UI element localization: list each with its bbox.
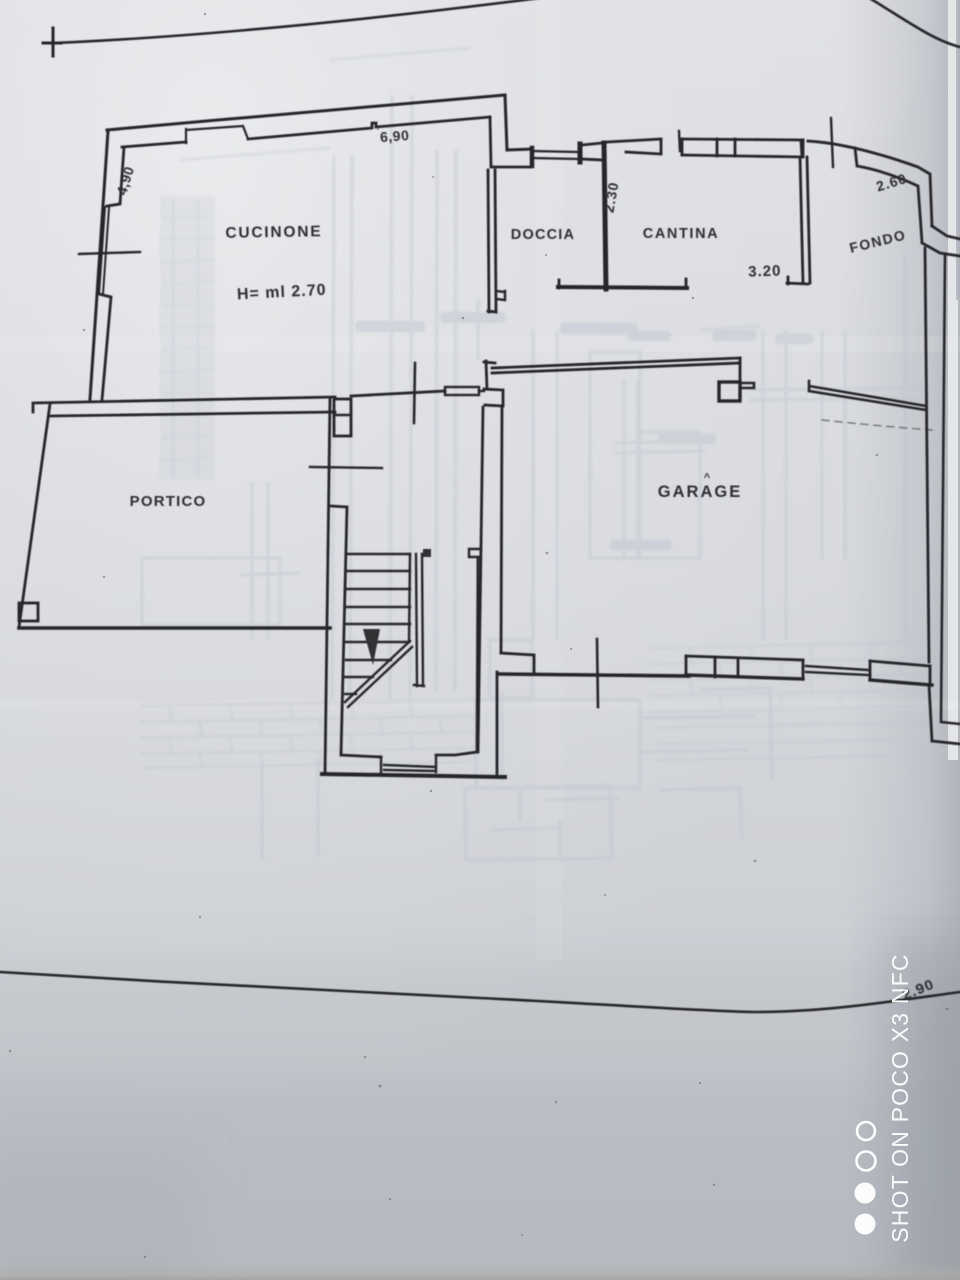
svg-text:3.20: 3.20 <box>748 262 782 280</box>
svg-text:CANTINA: CANTINA <box>643 226 719 242</box>
svg-text:6,90: 6,90 <box>380 127 410 145</box>
svg-text:SHOT ON POCO X3 NFC: SHOT ON POCO X3 NFC <box>887 953 913 1242</box>
svg-text:^: ^ <box>704 472 711 484</box>
svg-text:CUCINONE: CUCINONE <box>225 223 322 242</box>
svg-text:PORTICO: PORTICO <box>130 493 207 510</box>
svg-text:DOCCIA: DOCCIA <box>511 227 575 243</box>
svg-text:GARAGE: GARAGE <box>658 483 742 501</box>
